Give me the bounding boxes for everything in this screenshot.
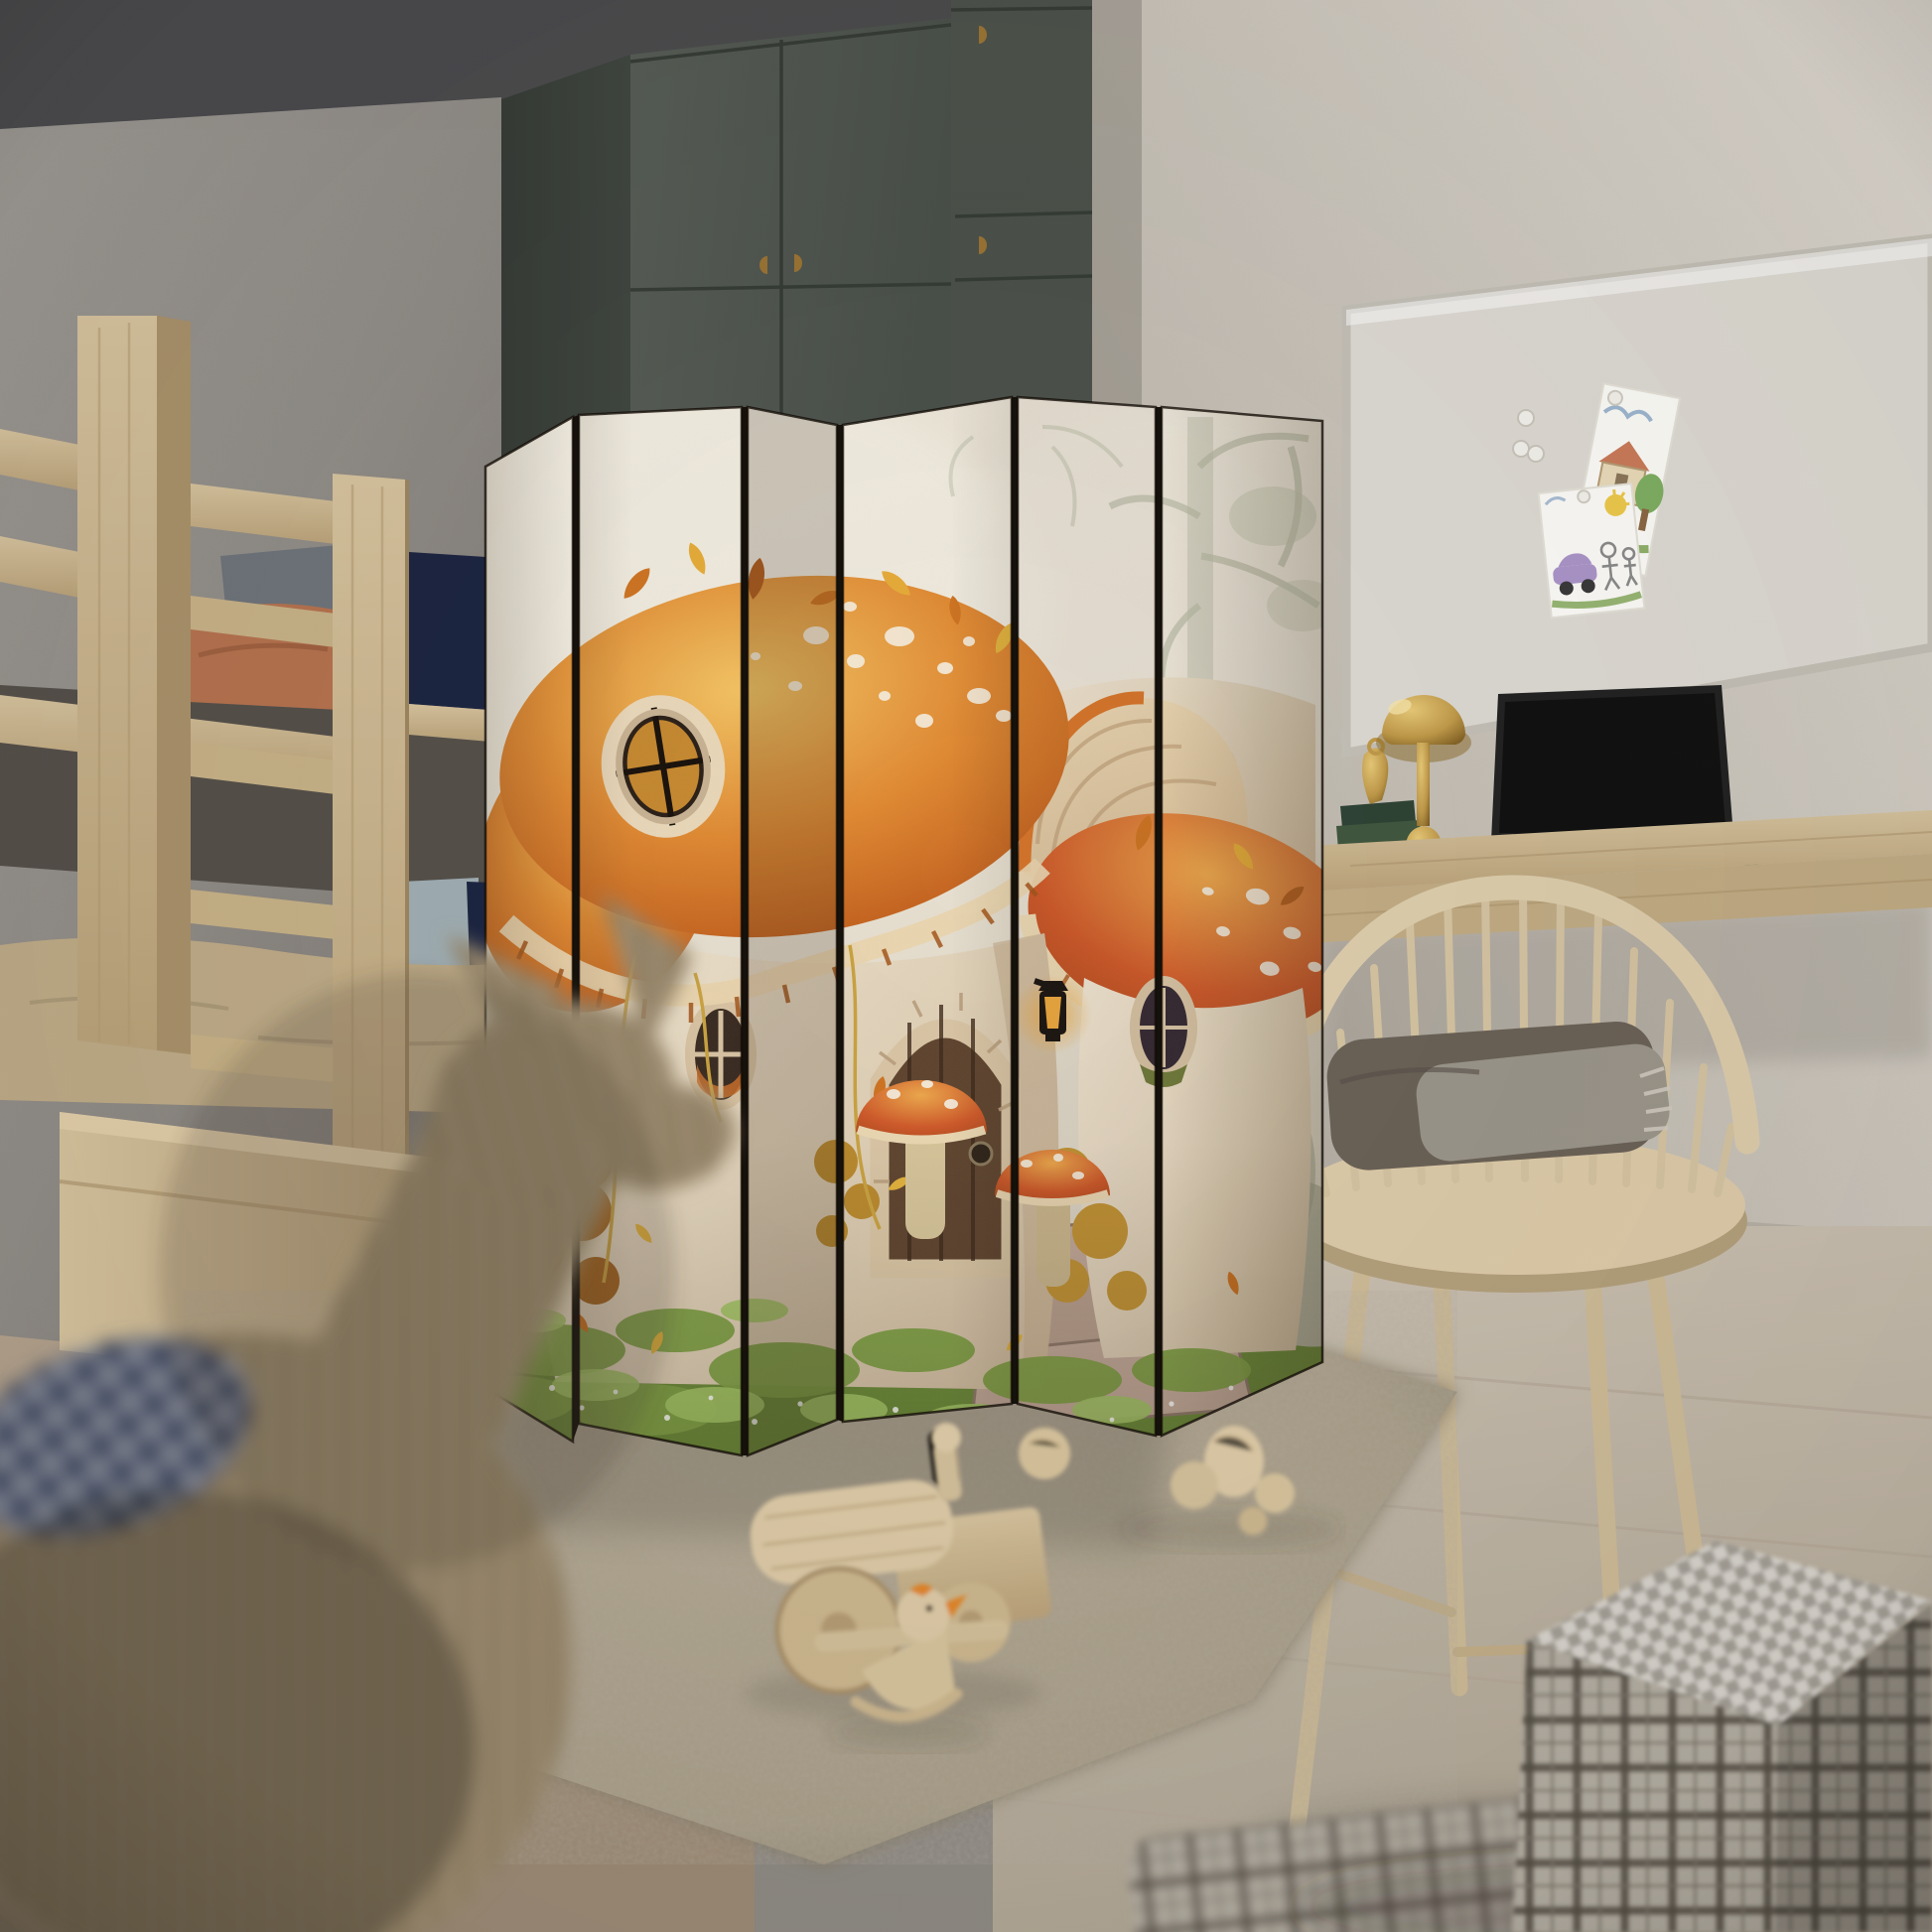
room-photo xyxy=(0,0,1932,1932)
scene-canvas xyxy=(0,0,1932,1932)
vignette xyxy=(0,0,1932,1932)
